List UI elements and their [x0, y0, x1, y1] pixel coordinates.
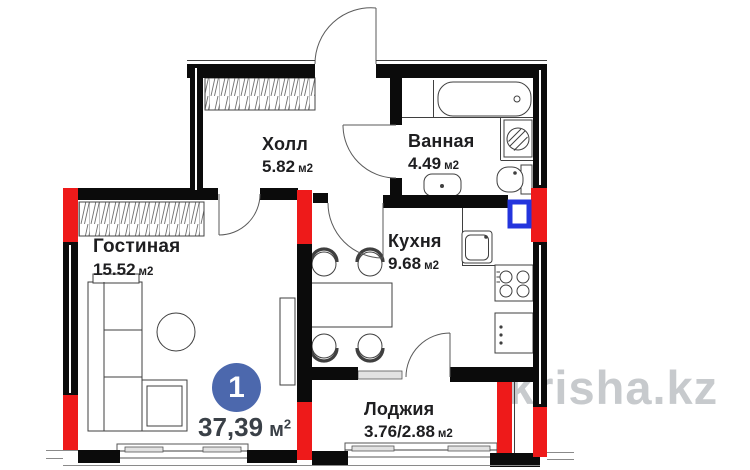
loggia-sill: [358, 371, 402, 379]
coffee-table: [157, 313, 195, 351]
room-count-badge: 1: [212, 363, 261, 412]
sofa: [88, 274, 187, 431]
dining-table: [310, 283, 392, 327]
room-area-unit: м2: [438, 428, 453, 440]
loggia-door: [406, 333, 450, 377]
wardrobe-hatch-living: [79, 202, 204, 236]
bathroom-sink: [424, 174, 461, 196]
ventilation-shaft: [510, 202, 529, 226]
room-area-unit: м2: [424, 260, 439, 272]
total-area: 37,39м2: [198, 412, 291, 443]
total-area-sup: 2: [284, 416, 291, 431]
chair: [311, 334, 337, 361]
room-area: 9.68: [388, 254, 421, 273]
room-area: 3.76/2.88: [364, 422, 435, 441]
living-room-door: [219, 194, 260, 235]
bathtub: [402, 80, 533, 118]
room-area-unit: м2: [444, 160, 459, 172]
bathroom-door: [343, 125, 396, 178]
room-label-living: Гостиная 15.52м2: [93, 236, 180, 279]
total-area-unit: м: [269, 419, 284, 441]
floor-plan: krisha.kz: [0, 0, 750, 470]
total-area-value: 37,39: [198, 412, 263, 442]
room-area-unit: м2: [298, 163, 313, 175]
room-label-loggia: Лоджия 3.76/2.88м2: [364, 399, 453, 441]
room-area-unit: м2: [139, 266, 154, 278]
room-area: 15.52: [93, 260, 136, 279]
room-name: Ванная: [408, 131, 474, 152]
toilet: [497, 165, 532, 194]
window-living: [117, 444, 248, 458]
washing-machine: [501, 117, 534, 161]
stove: [495, 265, 533, 301]
room-name: Гостиная: [93, 236, 180, 258]
kitchen-sink: [462, 231, 492, 263]
room-label-bathroom: Ванная 4.49м2: [408, 131, 474, 173]
chair: [311, 249, 337, 276]
room-name: Холл: [262, 134, 313, 155]
entrance-door: [315, 8, 376, 64]
kitchen-cabinet: [495, 313, 533, 353]
room-label-hall: Холл 5.82м2: [262, 134, 313, 176]
room-label-kitchen: Кухня 9.68м2: [388, 231, 442, 273]
room-name: Лоджия: [364, 399, 453, 420]
chair: [357, 334, 383, 361]
room-area: 4.49: [408, 154, 441, 173]
wardrobe-hatch-hall: [205, 78, 315, 110]
room-name: Кухня: [388, 231, 442, 252]
window-loggia: [345, 443, 497, 457]
room-area: 5.82: [262, 157, 295, 176]
shelf: [280, 298, 295, 385]
